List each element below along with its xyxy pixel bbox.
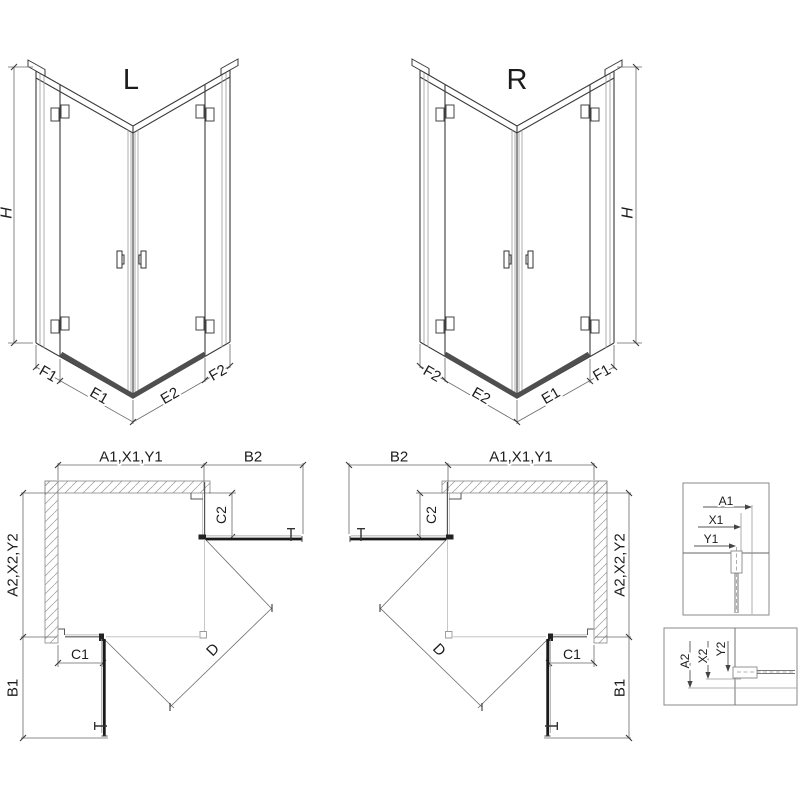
- wall-hatch-side: [594, 481, 607, 643]
- plan-left-door-side-label: B1: [5, 679, 22, 697]
- detail-bottom-y2-label: Y2: [714, 641, 728, 656]
- iso-left-e2-label: E2: [158, 384, 182, 408]
- plan-right-door-top-label: B2: [390, 449, 408, 466]
- plan-left-door-top-label: B2: [244, 449, 262, 466]
- iso-right-f2-label: F2: [420, 362, 444, 385]
- detail-bottom-a2-label: A2: [678, 653, 692, 668]
- detail-view-bottom: A2 X2 Y2: [664, 628, 797, 705]
- technical-drawing-page: L H F1 E1 E2 F2 R H F2 E2 E1 F1 A1,X1,Y1…: [0, 0, 800, 800]
- wall-hatch-side: [45, 481, 58, 643]
- detail-bottom-profile-sleeve: [733, 667, 757, 678]
- plan-right-view: A1,X1,Y1 B2 A2,X2,Y2 B1 C2 C1 D: [346, 449, 632, 742]
- plan-left-c1-label: C1: [71, 646, 89, 662]
- plan-right-width-label: A1,X1,Y1: [489, 449, 552, 466]
- plan-left-width-label: A1,X1,Y1: [99, 449, 162, 466]
- plan-left-diagonal-label: D: [203, 640, 223, 660]
- detail-top-x1-label: X1: [709, 513, 724, 527]
- detail-bottom-x2-label: X2: [696, 648, 710, 663]
- wall-hatch-top: [45, 481, 210, 493]
- plan-right-diagonal-label: D: [429, 640, 449, 660]
- detail-top-y1-label: Y1: [704, 532, 719, 546]
- plan-right-height-side-label: A2,X2,Y2: [612, 533, 629, 596]
- shower-enclosure-drawing: L H F1 E1 E2 F2 R H F2 E2 E1 F1 A1,X1,Y1…: [0, 0, 800, 800]
- plan-left-height-side-label: A2,X2,Y2: [5, 533, 22, 596]
- plan-left-view: A1,X1,Y1 B2 A2,X2,Y2 B1 C2 C1 D: [5, 449, 307, 742]
- plan-left-c2-label: C2: [213, 506, 229, 524]
- iso-right-view: R H F2 E2 E1 F1: [412, 59, 642, 425]
- iso-left-e1-label: E1: [87, 384, 111, 408]
- iso-right-e2-label: E2: [469, 384, 493, 408]
- plan-right-door-side-label: B1: [612, 679, 629, 697]
- iso-left-f1-label: F1: [36, 362, 60, 385]
- iso-right-title: R: [507, 64, 528, 96]
- detail-top-a1-label: A1: [719, 494, 734, 508]
- iso-left-view: L H F1 E1 E2 F2: [0, 59, 238, 425]
- iso-right-height-label: H: [620, 207, 637, 219]
- detail-view-top: A1 X1 Y1: [683, 483, 769, 615]
- iso-left-title: L: [123, 64, 139, 96]
- plan-right-c2-label: C2: [423, 506, 439, 524]
- wall-hatch-top: [442, 481, 607, 493]
- iso-left-f2-label: F2: [206, 361, 230, 384]
- iso-left-height-label: H: [0, 207, 16, 219]
- plan-right-c1-label: C1: [563, 646, 581, 662]
- iso-right-e1-label: E1: [539, 384, 563, 408]
- iso-right-f1-label: F1: [590, 361, 614, 384]
